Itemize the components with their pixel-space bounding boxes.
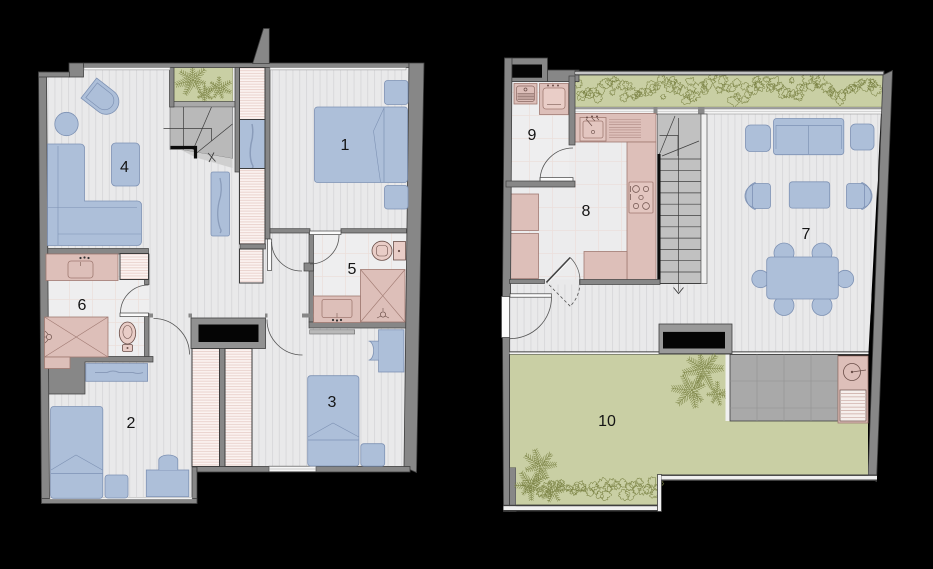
svg-text:4: 4 [120, 159, 129, 176]
svg-text:10: 10 [598, 413, 616, 430]
svg-text:3: 3 [328, 394, 337, 411]
svg-text:6: 6 [78, 297, 87, 314]
svg-text:1: 1 [341, 137, 350, 154]
svg-text:7: 7 [802, 226, 811, 243]
svg-text:2: 2 [127, 415, 136, 432]
svg-text:8: 8 [582, 203, 591, 220]
svg-text:5: 5 [348, 261, 357, 278]
svg-text:9: 9 [528, 127, 537, 144]
